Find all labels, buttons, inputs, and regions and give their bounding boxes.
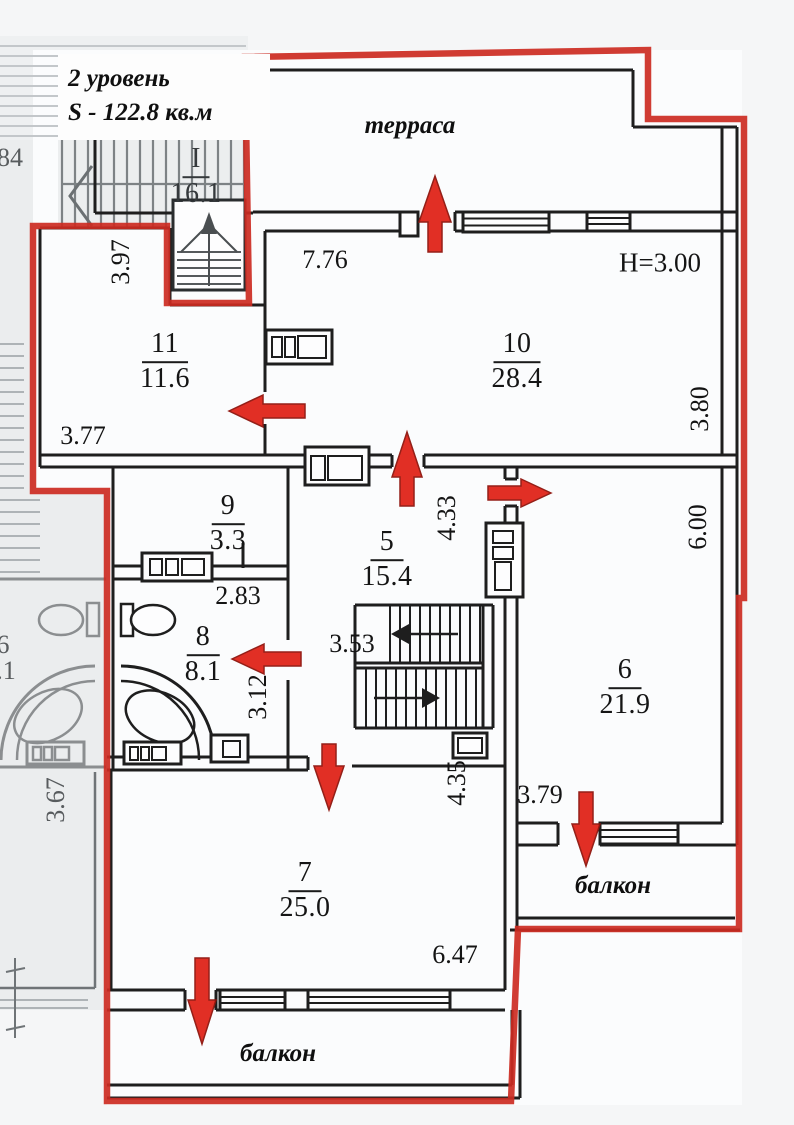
dim-hall-width: 2.83 xyxy=(215,581,261,611)
room-area: 28.4 xyxy=(492,363,543,395)
dim-room11-width: 3.77 xyxy=(60,421,106,451)
stairwell-number: I xyxy=(182,144,210,178)
level-title-line1: 2 уровень xyxy=(68,62,264,96)
room-label-7: 7 25.0 xyxy=(280,858,331,924)
stairwell-label: I 16.1 xyxy=(171,144,222,210)
room-number: 10 xyxy=(494,329,541,363)
room-area: 11.6 xyxy=(140,363,190,395)
room-label-8: 8 8.1 xyxy=(185,622,222,688)
room-area: 25.0 xyxy=(280,892,331,924)
terrace-label: терраса xyxy=(365,112,456,140)
room-area: 8.1 xyxy=(185,656,222,688)
dim-room6-bottom: 3.79 xyxy=(517,780,563,810)
room-label-11: 11 11.6 xyxy=(140,329,190,395)
room-area: 21.9 xyxy=(600,689,651,721)
level-title: 2 уровень S - 122.8 кв.м xyxy=(58,54,270,140)
room-label-9: 9 3.3 xyxy=(210,491,247,557)
room-label-10: 10 28.4 xyxy=(492,329,543,395)
room-label-5: 5 15.4 xyxy=(362,527,413,593)
dim-neighbor-side: 3.67 xyxy=(41,777,71,823)
dim-room10-side: 3.80 xyxy=(685,386,715,432)
level-title-line2: S - 122.8 кв.м xyxy=(68,96,264,130)
dim-room8-side: 3.12 xyxy=(243,674,273,720)
room-number: 8 xyxy=(187,622,220,656)
room-number: 9 xyxy=(212,491,245,525)
dim-room6-side: 6.00 xyxy=(683,504,713,550)
balcony-bottom-label: балкон xyxy=(240,1040,316,1068)
dim-room11-side: 3.97 xyxy=(106,239,136,285)
room-number: 11 xyxy=(142,329,188,363)
room-area: 3.3 xyxy=(210,525,247,557)
ceiling-height-note: H=3.00 xyxy=(619,248,701,279)
dim-room5-side: 4.33 xyxy=(432,495,462,541)
room-number: 7 xyxy=(289,858,322,892)
dim-room7-side: 4.35 xyxy=(442,760,472,806)
room-label-6: 6 21.9 xyxy=(600,655,651,721)
room-number: 6 xyxy=(609,655,642,689)
floor-plan-page: 2 уровень S - 122.8 кв.м терраса балкон … xyxy=(0,0,794,1125)
stairwell-area: 16.1 xyxy=(171,178,222,210)
balcony-right-label: балкон xyxy=(575,872,651,900)
dim-stair-hall-width: 3.53 xyxy=(329,629,375,659)
dim-terrace-front: 7.76 xyxy=(302,245,348,275)
neighbor-area-partial: .1 xyxy=(0,656,16,686)
dim-room7-width: 6.47 xyxy=(432,940,478,970)
room-area: 15.4 xyxy=(362,561,413,593)
room-number: 5 xyxy=(371,527,404,561)
stair-landing-box xyxy=(173,200,245,290)
dim-edge-partial: 84 xyxy=(0,143,23,173)
